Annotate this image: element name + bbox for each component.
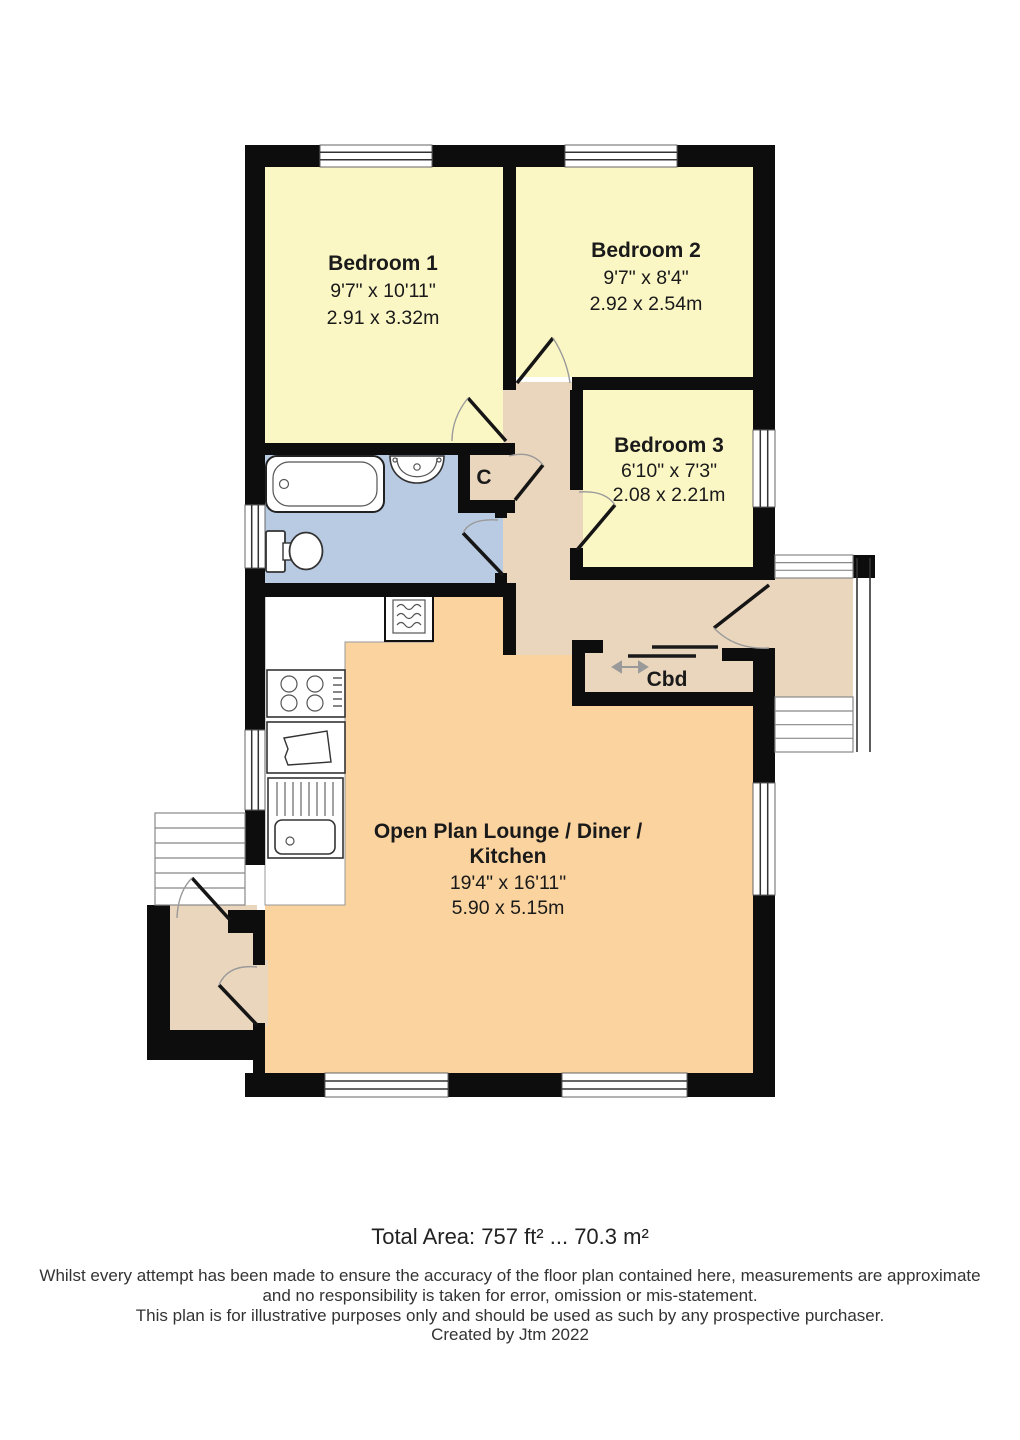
entrance-landing xyxy=(775,578,853,697)
bedroom2-dim-m: 2.92 x 2.54m xyxy=(590,293,703,315)
bedroom1-dim-m: 2.91 x 3.32m xyxy=(327,307,440,329)
disclaimer-line3: This plan is for illustrative purposes o… xyxy=(136,1306,884,1325)
disclaimer-line1: Whilst every attempt has been made to en… xyxy=(39,1266,980,1285)
bedroom2-dim-ft: 9'7" x 8'4" xyxy=(603,267,688,289)
window-lounge-right xyxy=(753,783,775,895)
lounge-dim-ft: 19'4" x 16'11" xyxy=(450,872,566,894)
bedroom1-floor xyxy=(265,167,503,443)
window-kitchen xyxy=(245,730,265,810)
window-bottom-left xyxy=(325,1073,448,1097)
floor-plan: Bedroom 1 9'7" x 10'11" 2.91 x 3.32m Bed… xyxy=(0,0,1020,1440)
bathtub-icon xyxy=(266,456,384,512)
bedroom1-dim-ft: 9'7" x 10'11" xyxy=(330,280,436,302)
worktop-appliance-icon xyxy=(267,722,345,773)
kitchen-sink-icon xyxy=(268,778,343,858)
disclaimer-line2: and no responsibility is taken for error… xyxy=(262,1286,757,1305)
window-bottom-right xyxy=(562,1073,687,1097)
total-area-text: Total Area: 757 ft² ... 70.3 m² xyxy=(371,1224,649,1249)
bedroom3-name: Bedroom 3 xyxy=(614,434,724,457)
cupboard-label: Cbd xyxy=(647,668,688,691)
lounge-name-line1: Open Plan Lounge / Diner / xyxy=(374,820,643,843)
lounge-dim-m: 5.90 x 5.15m xyxy=(452,897,565,919)
exterior-stairs-left xyxy=(155,813,245,905)
lounge-name-line2: Kitchen xyxy=(469,845,546,868)
boiler-icon xyxy=(385,592,433,641)
window-top-bedroom2 xyxy=(565,145,677,167)
small-cupboard-label: C xyxy=(476,466,491,489)
bedroom3-dim-m: 2.08 x 2.21m xyxy=(613,484,726,506)
floor-plan-page: Bedroom 1 9'7" x 10'11" 2.91 x 3.32m Bed… xyxy=(0,0,1020,1440)
bedroom3-dim-ft: 6'10" x 7'3" xyxy=(621,460,717,482)
credit-text: Created by Jtm 2022 xyxy=(431,1325,589,1344)
window-top-bedroom1 xyxy=(320,145,432,167)
window-bathroom xyxy=(245,505,265,568)
hob-icon xyxy=(267,670,345,717)
bedroom2-name: Bedroom 2 xyxy=(591,239,701,262)
window-bedroom3 xyxy=(753,430,775,507)
bedroom1-name: Bedroom 1 xyxy=(328,252,438,275)
